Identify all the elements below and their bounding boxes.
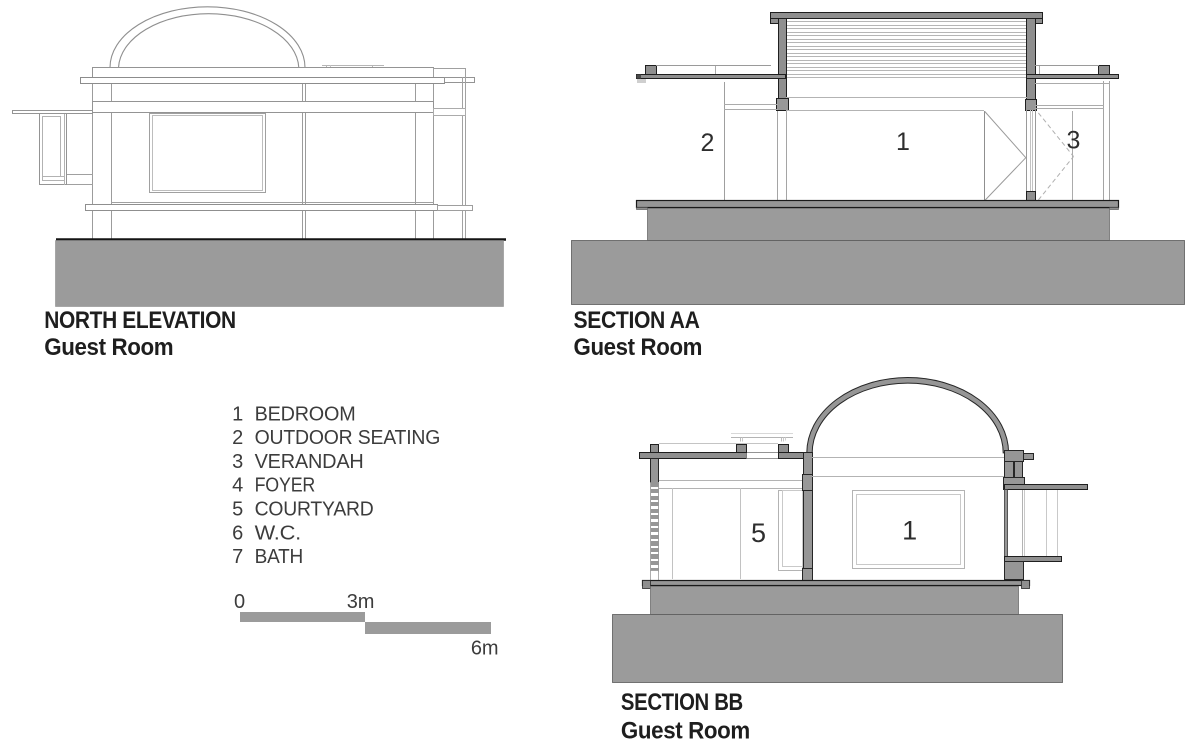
- svg-text:2: 2: [232, 427, 243, 449]
- svg-text:6: 6: [232, 522, 243, 544]
- svg-text:7: 7: [232, 546, 243, 568]
- svg-text:NORTH ELEVATION: NORTH ELEVATION: [44, 307, 236, 334]
- svg-text:5: 5: [232, 499, 243, 521]
- svg-text:BEDROOM: BEDROOM: [255, 403, 356, 425]
- svg-text:1: 1: [902, 516, 917, 546]
- svg-text:Guest Room: Guest Room: [574, 334, 703, 361]
- svg-text:2: 2: [701, 129, 715, 157]
- svg-text:FOYER: FOYER: [255, 475, 316, 497]
- svg-text:OUTDOOR SEATING: OUTDOOR SEATING: [255, 427, 441, 449]
- svg-text:5: 5: [751, 518, 766, 548]
- svg-text:BATH: BATH: [255, 546, 304, 568]
- svg-text:SECTION BB: SECTION BB: [621, 689, 743, 716]
- svg-text:6m: 6m: [471, 637, 498, 659]
- svg-text:1: 1: [896, 128, 910, 156]
- svg-text:SECTION AA: SECTION AA: [574, 307, 700, 334]
- svg-text:VERANDAH: VERANDAH: [255, 451, 364, 473]
- svg-text:W.C.: W.C.: [255, 522, 301, 544]
- svg-text:1: 1: [232, 403, 243, 425]
- svg-text:3: 3: [1067, 127, 1081, 155]
- svg-text:COURTYARD: COURTYARD: [255, 499, 374, 521]
- svg-text:3: 3: [232, 451, 243, 473]
- svg-text:3m: 3m: [347, 591, 374, 613]
- svg-text:4: 4: [232, 475, 243, 497]
- svg-text:Guest Room: Guest Room: [44, 334, 173, 361]
- svg-text:Guest Room: Guest Room: [621, 717, 750, 744]
- svg-text:0: 0: [234, 591, 245, 613]
